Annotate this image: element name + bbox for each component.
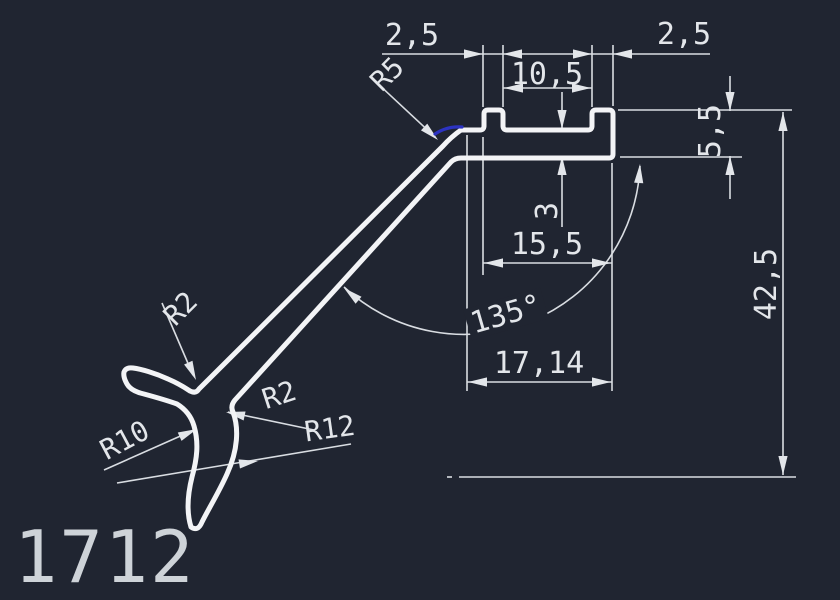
dim-tab-right-value: 2,5 xyxy=(657,17,711,52)
leader-r2-claw[interactable]: R2 xyxy=(225,374,314,430)
part-number-label[interactable]: 1712 xyxy=(14,515,195,599)
arrowhead xyxy=(634,164,645,184)
leader-r5[interactable]: R5 xyxy=(363,50,441,143)
leader-r10-label: R10 xyxy=(95,414,155,467)
leader-r2-claw-label: R2 xyxy=(258,374,300,416)
dim-overall-height-value: 42,5 xyxy=(749,248,784,320)
dim-tab-left-value: 2,5 xyxy=(385,18,439,53)
dim-slot-width-value: 10,5 xyxy=(511,57,583,92)
dim-slot-width[interactable]: 10,5 xyxy=(503,57,592,93)
leader-r12-label: R12 xyxy=(302,409,357,449)
dim-base-thickness-value: 3 xyxy=(530,202,565,220)
arrowhead xyxy=(484,258,503,267)
dim-tab-right[interactable]: 2,5 xyxy=(573,17,711,59)
cad-drawing: 135° 2,5 2,5 10,5 3 15,5 17,14 xyxy=(0,0,840,600)
dim-angle[interactable]: 135° xyxy=(341,164,645,342)
arrowhead xyxy=(184,361,200,382)
arrowhead xyxy=(239,456,259,468)
dim-top-width[interactable]: 15,5 xyxy=(483,227,612,268)
arrowhead xyxy=(557,110,566,129)
dim-top-height-value: 5,5 xyxy=(693,104,728,158)
leader-r5-label: R5 xyxy=(363,50,410,97)
dim-overall-width[interactable]: 17,14 xyxy=(467,346,612,387)
dim-top-width-value: 15,5 xyxy=(511,227,583,262)
leader-r2-notch[interactable]: R2 xyxy=(157,285,204,382)
dim-angle-value: 135° xyxy=(467,288,546,342)
leader-r10[interactable]: R10 xyxy=(95,414,199,470)
arrowhead xyxy=(613,49,632,58)
arrowhead xyxy=(592,377,611,386)
dim-top-height[interactable]: 5,5 xyxy=(693,76,735,199)
leader-r2-notch-label: R2 xyxy=(157,285,204,332)
arrowhead xyxy=(778,456,787,475)
dim-overall-height[interactable]: 42,5 xyxy=(749,112,788,475)
arrowhead xyxy=(778,112,787,131)
cad-viewport[interactable]: 135° 2,5 2,5 10,5 3 15,5 17,14 xyxy=(0,0,840,600)
dim-overall-width-value: 17,14 xyxy=(494,346,584,381)
arrowhead xyxy=(468,377,487,386)
arrowhead xyxy=(464,49,483,58)
